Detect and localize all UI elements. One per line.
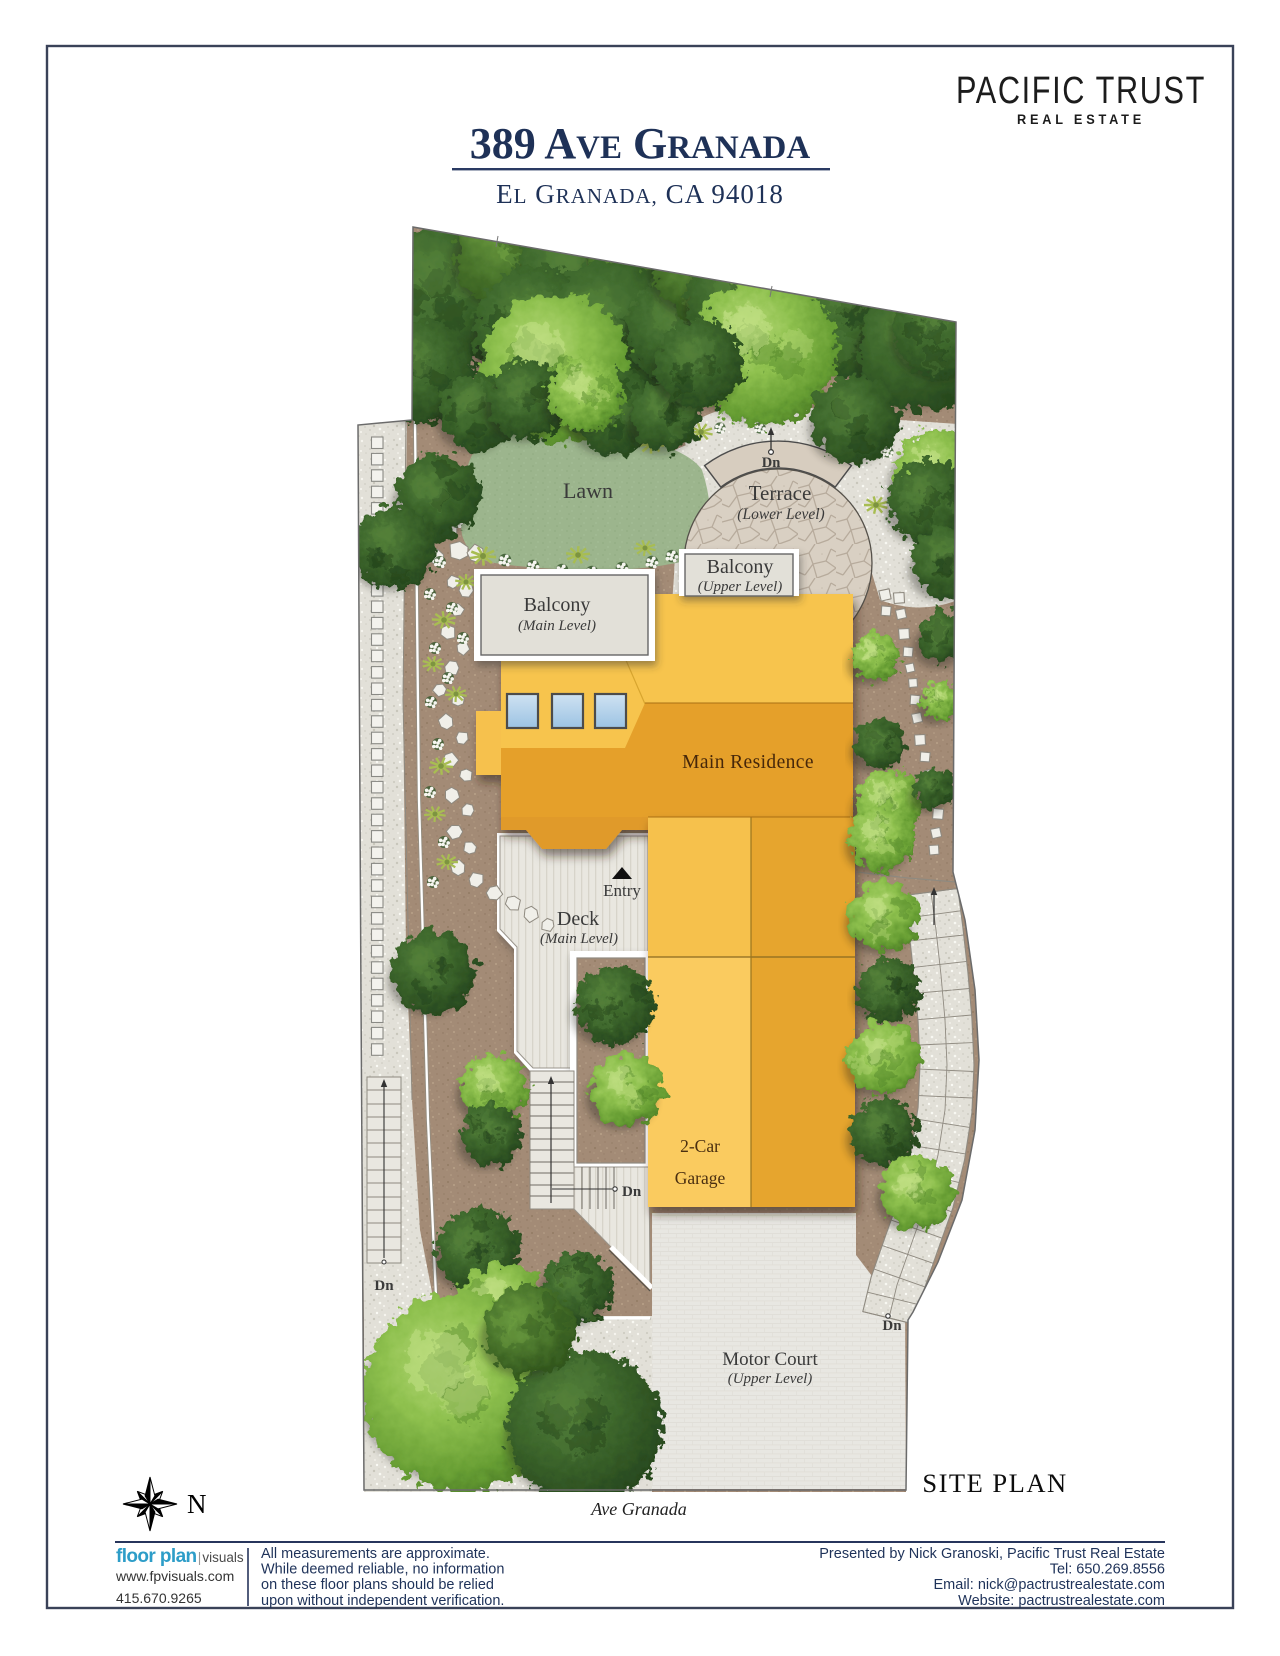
svg-text:Balcony: Balcony xyxy=(524,594,591,616)
svg-text:Lawn: Lawn xyxy=(563,478,613,503)
svg-text:upon without independent verif: upon without independent verification. xyxy=(261,1593,504,1609)
svg-text:All measurements are approxima: All measurements are approximate. xyxy=(261,1546,490,1562)
svg-text:Tel: 650.269.8556: Tel: 650.269.8556 xyxy=(1050,1562,1165,1578)
svg-text:Balcony: Balcony xyxy=(707,556,774,578)
svg-text:SITE PLAN: SITE PLAN xyxy=(922,1468,1067,1498)
svg-text:Email: nick@pactrustrealestate: Email: nick@pactrustrealestate.com xyxy=(934,1577,1166,1593)
svg-text:2-Car: 2-Car xyxy=(680,1136,720,1156)
svg-text:(Upper Level): (Upper Level) xyxy=(698,579,783,595)
svg-text:www.fpvisuals.com: www.fpvisuals.com xyxy=(115,1568,234,1584)
svg-text:Presented by Nick Granoski, Pa: Presented by Nick Granoski, Pacific Trus… xyxy=(819,1546,1165,1562)
svg-text:Deck: Deck xyxy=(557,908,599,930)
svg-text:PACIFIC TRUST: PACIFIC TRUST xyxy=(956,70,1206,112)
svg-text:Ave Granada: Ave Granada xyxy=(590,1499,686,1519)
svg-text:Garage: Garage xyxy=(675,1168,726,1188)
svg-text:Website: pactrustrealestate.co: Website: pactrustrealestate.com xyxy=(958,1593,1165,1609)
svg-text:(Upper Level): (Upper Level) xyxy=(728,1371,813,1387)
svg-text:While deemed reliable, no info: While deemed reliable, no information xyxy=(261,1562,504,1578)
svg-text:Dn: Dn xyxy=(622,1184,642,1200)
svg-text:REAL ESTATE: REAL ESTATE xyxy=(1017,112,1145,127)
svg-text:floor plan | visuals: floor plan | visuals xyxy=(116,1546,244,1567)
svg-text:389 AVE GRANADA: 389 AVE GRANADA xyxy=(470,119,811,168)
svg-text:(Main Level): (Main Level) xyxy=(540,931,618,947)
svg-text:Main Residence: Main Residence xyxy=(682,752,814,773)
svg-text:EL GRANADA, CA 94018: EL GRANADA, CA 94018 xyxy=(496,179,784,209)
svg-text:Dn: Dn xyxy=(882,1318,902,1334)
svg-text:Motor Court: Motor Court xyxy=(722,1349,818,1370)
svg-text:415.670.9265: 415.670.9265 xyxy=(116,1590,202,1606)
svg-text:Terrace: Terrace xyxy=(749,481,812,505)
svg-text:on these floor plans should be: on these floor plans should be relied xyxy=(261,1577,494,1593)
svg-text:Entry: Entry xyxy=(603,881,641,900)
svg-text:N: N xyxy=(187,1489,207,1519)
svg-text:Dn: Dn xyxy=(762,455,781,471)
svg-text:Dn: Dn xyxy=(374,1278,394,1294)
svg-text:(Lower Level): (Lower Level) xyxy=(737,506,824,523)
svg-text:(Main Level): (Main Level) xyxy=(518,618,596,634)
